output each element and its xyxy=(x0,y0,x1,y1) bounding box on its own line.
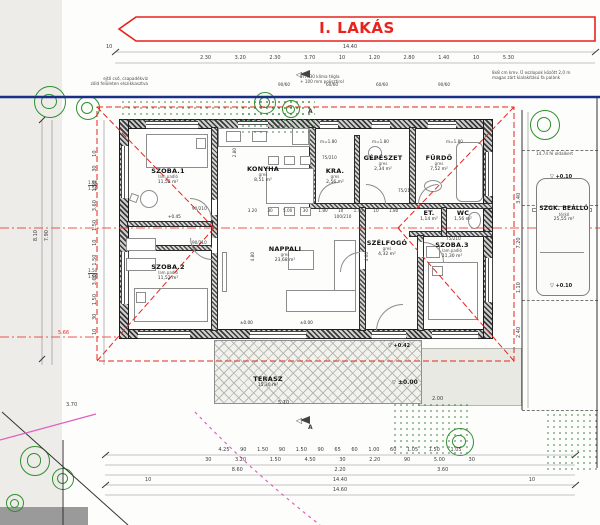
level-parking-2: ▽ +0.10 xyxy=(550,283,572,289)
window-gepeszet xyxy=(372,121,390,129)
window-szoba3-east xyxy=(485,258,493,302)
tree xyxy=(52,468,74,490)
level-marker-icon: ▽ xyxy=(550,283,554,289)
table-szoba1 xyxy=(140,190,158,208)
tv-unit xyxy=(222,252,227,292)
level-marker-icon: ▽ xyxy=(550,174,554,180)
pillow-szoba2 xyxy=(136,292,146,303)
dim-top-row: 2.30 3.20 2.30 3.70 10 1.20 2.80 1.40 10… xyxy=(118,55,596,61)
parking-bound xyxy=(522,410,598,411)
partition-szelfogo-west xyxy=(360,208,365,330)
door-arc-furdo xyxy=(418,184,438,204)
room-label-szoba1: SZOBA.1 lam.padló 11,52 m² xyxy=(128,168,208,185)
door-size: 100/210 xyxy=(334,214,351,219)
window-size: 90/60 xyxy=(278,82,290,87)
dim-left-total-79: 7.90 xyxy=(44,230,50,241)
note-downpipe: ejtő cső, csapadékvíz zöld felületen els… xyxy=(42,76,148,87)
dim-terrace-side: 2.00 xyxy=(432,396,443,402)
terrace-door xyxy=(250,331,306,339)
terrace-area xyxy=(214,340,422,404)
dim-red: 5.66 xyxy=(58,330,69,336)
tree xyxy=(34,86,66,118)
door-size: 75/210 xyxy=(446,236,461,241)
level-nappali-2: ±0.00 xyxy=(300,320,313,325)
door-size: 90/210 xyxy=(192,240,207,245)
tree xyxy=(254,92,276,114)
dining-chair xyxy=(284,156,295,165)
dim-konyha-height: 2.80 xyxy=(232,148,237,157)
section-label-top: A xyxy=(308,108,313,115)
room-label-kamra: KRA. gres 2,56 m² xyxy=(316,168,354,185)
window-kamra xyxy=(320,121,338,129)
dim-szelfogo-height: 4.60 xyxy=(364,252,369,261)
parking-bound xyxy=(522,300,598,301)
partition-hall-top xyxy=(128,222,212,226)
dining-chair xyxy=(268,156,279,165)
room-label-konyha: KONYHA gres 8,51 m² xyxy=(234,166,292,183)
dim-mid-row: 3.20 30 5.00 30 1.80 10 1.40 10 1.80 xyxy=(158,208,488,213)
dim-left-chain: 10 30 1.50 3.60 1.50 10 1.50 3.60 1.50 3… xyxy=(92,125,98,360)
room-label-szgk-beallo: SZGK. BEÁLLÓ térkő 25,55 m² xyxy=(530,206,598,222)
sofa-seat xyxy=(286,290,356,312)
height-label: m=1.80 xyxy=(372,139,389,144)
dim-left-total-81: 8.10 xyxy=(33,230,39,241)
tree xyxy=(282,100,300,118)
dim-terrace-width: 5.10 xyxy=(278,400,289,406)
height-label: m=1.80 xyxy=(320,139,337,144)
door-gap xyxy=(212,238,217,253)
desk-szoba2 xyxy=(126,238,156,251)
car-roof-line xyxy=(540,252,584,253)
dim-right-chain: 2.40 1.10 7.20 3.40 xyxy=(516,130,522,400)
height-label: m=1.80 xyxy=(446,139,463,144)
dining-chair xyxy=(300,156,311,165)
level-parking-1: ▽ +0.10 xyxy=(550,174,572,180)
partition-west xyxy=(212,128,217,330)
dim-top-10: 10 xyxy=(106,44,112,50)
room-label-nappali: NAPPALI gres 23,68 m² xyxy=(246,246,324,263)
chair-szoba1 xyxy=(129,193,139,203)
floor-plan-canvas: I. LAKÁS xyxy=(0,0,600,525)
tree xyxy=(530,110,560,140)
window-furdo-east xyxy=(485,152,493,196)
pillow-szoba1 xyxy=(196,138,206,149)
window-size: 60/60 xyxy=(326,82,338,87)
door-size: 75/210 xyxy=(398,188,413,193)
level-entry: ▽ ±0.00 xyxy=(392,379,418,386)
dim-bottom-row1: 4.25 90 1.50 90 1.50 90 65 60 1.00 60 1.… xyxy=(105,447,575,453)
dim-bottom-row2: 30 3.20 1.50 4.50 30 2.20 90 5.00 30 xyxy=(105,457,575,463)
level-terrace: ▽ +0.42 xyxy=(388,343,410,349)
level-marker-icon: ▽ xyxy=(388,343,392,349)
door-size: 75/210 xyxy=(322,155,337,160)
section-label-bottom: A xyxy=(308,424,313,431)
dim-bottom-row3: 8.60 2.20 3.60 xyxy=(105,467,575,473)
window-size: 60/60 xyxy=(376,82,388,87)
door-arc-gepeszet xyxy=(366,184,386,204)
note-fence: 8x8 cm kmv. Ü oszlopok között 2,0 m maga… xyxy=(492,70,596,81)
room-label-gepeszet: GÉPÉSZET gres 2,34 m² xyxy=(354,155,412,172)
window-size: 90/60 xyxy=(438,82,450,87)
dim-bottom-row4: 10 14.40 10 xyxy=(105,477,575,483)
dim-top-total: 14.40 xyxy=(120,44,580,50)
tree xyxy=(76,96,100,120)
door-arc-entry xyxy=(376,304,403,331)
section-marker-icon: ◁ xyxy=(296,416,302,425)
tree xyxy=(6,494,24,512)
window-szoba3 xyxy=(432,331,478,339)
dim-left-bottom: 3.70 xyxy=(66,402,77,408)
window-furdo xyxy=(428,121,456,129)
planting-bed-top2 xyxy=(240,99,315,133)
level-room1: +0.45 xyxy=(168,214,181,219)
dim-nappali-height: 4.80 xyxy=(250,252,255,261)
section-marker-icon: ◁ xyxy=(296,70,302,79)
room-label-szoba3: SZOBA.3 lam.padló 11,30 m² xyxy=(422,242,482,259)
level-nappali-1: ±0.00 xyxy=(240,320,253,325)
window-szoba1 xyxy=(146,121,198,129)
car-top-view xyxy=(536,178,590,296)
room-label-furdo: FÜRDŐ gres 7,52 m² xyxy=(416,155,462,172)
plan-title: I. LAKÁS xyxy=(118,19,596,37)
kitchen-stove xyxy=(226,131,241,142)
entry-door-gap xyxy=(372,331,406,339)
tree xyxy=(20,446,50,476)
room-label-terasz: TERASZ 15,30 m² xyxy=(238,376,298,389)
dim-bottom-row5: 14.60 xyxy=(105,487,575,493)
level-marker-icon: ▽ xyxy=(392,380,396,386)
note-side-yard: 14,74 fé oldalkert xyxy=(536,151,596,156)
pillow-szoba3 xyxy=(432,266,443,276)
window-szoba2 xyxy=(138,331,190,339)
room-label-szoba2: SZOBA.2 lam.padló 11,52 m² xyxy=(128,264,208,281)
